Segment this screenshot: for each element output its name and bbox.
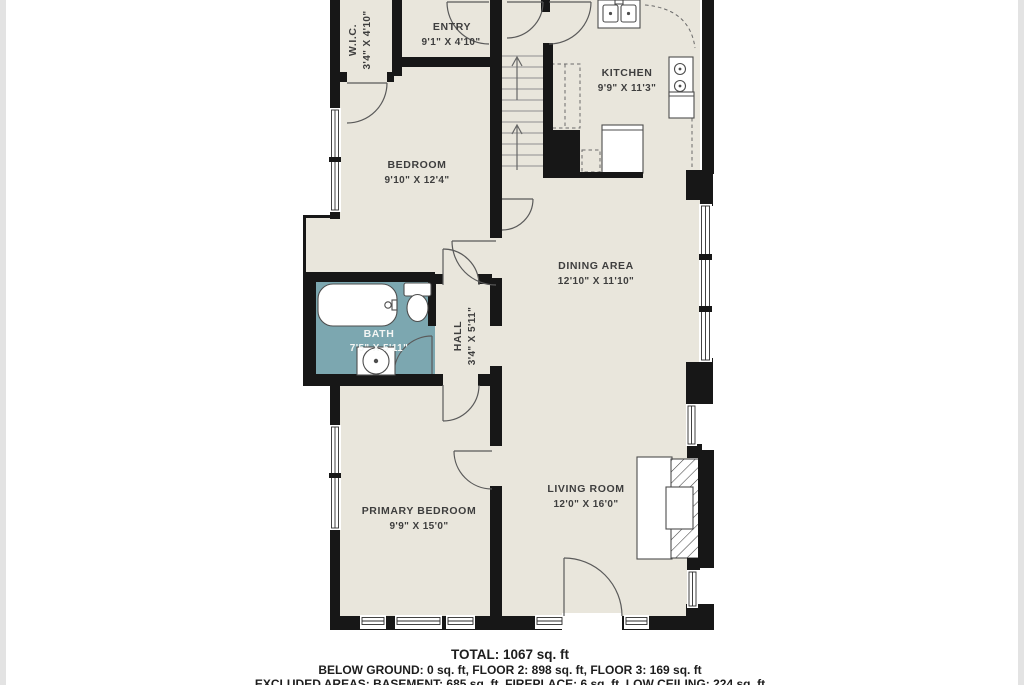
kitchen-sink-counter	[598, 0, 640, 28]
svg-text:9'10" X 12'4": 9'10" X 12'4"	[384, 175, 449, 186]
excluded-area-text: EXCLUDED AREAS: BASEMENT: 685 sq. ft, FI…	[255, 677, 765, 685]
firebox	[666, 487, 693, 529]
svg-text:LIVING ROOM: LIVING ROOM	[547, 483, 624, 495]
total-area-text: TOTAL: 1067 sq. ft	[451, 647, 570, 662]
svg-text:DINING AREA: DINING AREA	[558, 260, 634, 272]
fireplace	[637, 457, 702, 559]
svg-text:12'10" X 11'10": 12'10" X 11'10"	[558, 276, 634, 287]
svg-text:9'1" X 4'10": 9'1" X 4'10"	[421, 37, 480, 48]
floor-plan: W.I.C. 3'4" X 4'10" ENTRY 9'1" X 4'10" K…	[0, 0, 1024, 685]
svg-text:ENTRY: ENTRY	[433, 21, 471, 33]
window-bay-dining	[699, 204, 712, 362]
svg-text:7'5" X 5'11": 7'5" X 5'11"	[350, 343, 409, 354]
svg-text:HALL: HALL	[452, 321, 464, 351]
window-bedroom-left	[329, 108, 341, 212]
photo-edge-right	[1018, 0, 1024, 685]
svg-text:3'4" X 5'11": 3'4" X 5'11"	[467, 307, 478, 366]
window-primary-bottom-2	[395, 615, 442, 629]
svg-text:3'4" X 4'10": 3'4" X 4'10"	[362, 10, 373, 69]
window-living-right-upper	[686, 404, 697, 446]
window-primary-bottom-1	[360, 615, 386, 629]
floor-plan-page: W.I.C. 3'4" X 4'10" ENTRY 9'1" X 4'10" K…	[0, 0, 1024, 685]
svg-text:9'9" X 11'3": 9'9" X 11'3"	[598, 83, 657, 94]
photo-edge-left	[0, 0, 6, 685]
stove	[669, 57, 693, 97]
bathtub	[318, 284, 397, 326]
svg-text:KITCHEN: KITCHEN	[602, 67, 653, 79]
exterior-door-gap	[562, 613, 622, 630]
svg-text:PRIMARY BEDROOM: PRIMARY BEDROOM	[362, 505, 477, 517]
svg-text:9'9" X 15'0": 9'9" X 15'0"	[389, 521, 448, 532]
counter-island	[602, 125, 643, 173]
window-primary-bottom-3	[446, 615, 475, 629]
window-living-bottom-2	[624, 615, 649, 629]
counter-right	[669, 92, 694, 118]
window-primary-left	[329, 425, 341, 530]
window-living-bottom-1	[535, 615, 564, 629]
floors-area-text: BELOW GROUND: 0 sq. ft, FLOOR 2: 898 sq.…	[318, 663, 701, 677]
svg-text:BEDROOM: BEDROOM	[387, 159, 446, 171]
svg-text:BATH: BATH	[364, 328, 395, 340]
svg-text:W.I.C.: W.I.C.	[347, 24, 359, 56]
area-summary: TOTAL: 1067 sq. ft BELOW GROUND: 0 sq. f…	[255, 647, 765, 685]
window-living-right-lower	[687, 570, 698, 608]
svg-text:12'0" X 16'0": 12'0" X 16'0"	[553, 499, 618, 510]
